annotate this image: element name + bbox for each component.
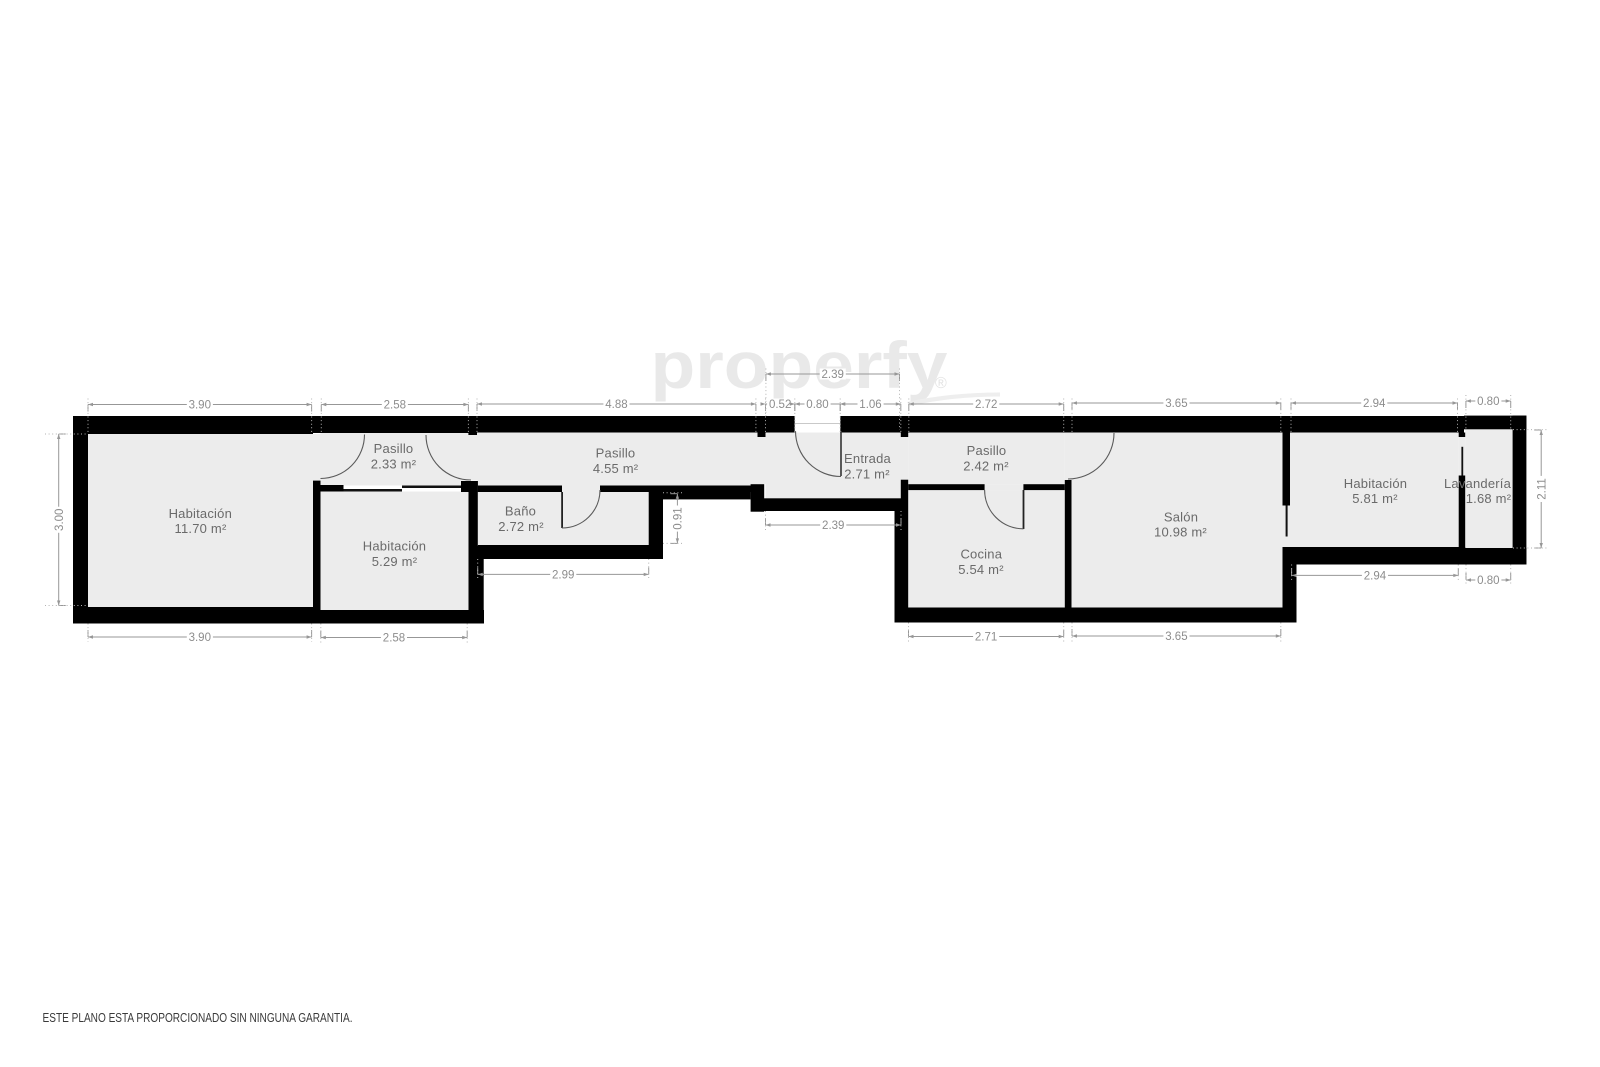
svg-text:2.33 m²: 2.33 m² xyxy=(371,457,417,472)
svg-text:10.98 m²: 10.98 m² xyxy=(1154,525,1207,540)
svg-text:3.65: 3.65 xyxy=(1165,398,1187,410)
svg-text:11.70 m²: 11.70 m² xyxy=(175,521,227,536)
svg-text:3.65: 3.65 xyxy=(1165,631,1187,643)
svg-text:Baño: Baño xyxy=(505,504,536,519)
svg-text:0.52: 0.52 xyxy=(769,399,791,411)
svg-text:3.00: 3.00 xyxy=(54,509,66,531)
svg-text:Habitación: Habitación xyxy=(363,539,426,554)
svg-text:Lavandería: Lavandería xyxy=(1444,476,1512,491)
svg-text:ESTE PLANO ESTA PROPORCIONADO: ESTE PLANO ESTA PROPORCIONADO SIN NINGUN… xyxy=(43,1010,353,1025)
svg-text:2.58: 2.58 xyxy=(383,633,405,645)
svg-text:Entrada: Entrada xyxy=(844,451,892,466)
svg-text:2.72: 2.72 xyxy=(975,399,997,411)
svg-text:Pasillo: Pasillo xyxy=(967,443,1007,458)
svg-text:0.80: 0.80 xyxy=(1477,396,1499,408)
svg-text:0.80: 0.80 xyxy=(806,399,828,411)
svg-text:Pasillo: Pasillo xyxy=(374,441,414,456)
svg-text:2.11: 2.11 xyxy=(1536,478,1548,500)
svg-text:Habitación: Habitación xyxy=(1344,476,1407,491)
svg-text:5.81 m²: 5.81 m² xyxy=(1352,491,1398,506)
svg-text:3.90: 3.90 xyxy=(189,632,211,644)
svg-text:5.29 m²: 5.29 m² xyxy=(372,554,418,569)
svg-text:2.99: 2.99 xyxy=(552,570,574,582)
svg-text:2.94: 2.94 xyxy=(1364,571,1387,583)
svg-text:4.88: 4.88 xyxy=(605,399,627,411)
svg-text:2.71: 2.71 xyxy=(975,632,997,644)
svg-text:2.39: 2.39 xyxy=(822,369,844,381)
svg-text:2.71 m²: 2.71 m² xyxy=(844,467,890,482)
svg-text:Habitación: Habitación xyxy=(169,506,232,521)
svg-text:1.06: 1.06 xyxy=(859,399,881,411)
svg-text:3.90: 3.90 xyxy=(189,400,211,412)
svg-text:2.58: 2.58 xyxy=(384,400,406,412)
svg-text:properfy: properfy xyxy=(651,328,948,402)
svg-text:®: ® xyxy=(935,375,947,392)
svg-text:2.94: 2.94 xyxy=(1363,398,1386,410)
svg-text:2.72 m²: 2.72 m² xyxy=(498,519,544,534)
svg-text:Pasillo: Pasillo xyxy=(596,446,636,461)
svg-text:0.91: 0.91 xyxy=(673,507,685,529)
svg-text:2.39: 2.39 xyxy=(822,520,844,532)
svg-text:0.80: 0.80 xyxy=(1477,575,1499,587)
svg-text:2.42 m²: 2.42 m² xyxy=(963,459,1009,474)
svg-text:1.68 m²: 1.68 m² xyxy=(1466,491,1512,506)
svg-text:Salón: Salón xyxy=(1164,509,1198,524)
svg-text:5.54 m²: 5.54 m² xyxy=(958,562,1004,577)
svg-text:Cocina: Cocina xyxy=(960,547,1002,562)
svg-text:4.55 m²: 4.55 m² xyxy=(593,461,639,476)
